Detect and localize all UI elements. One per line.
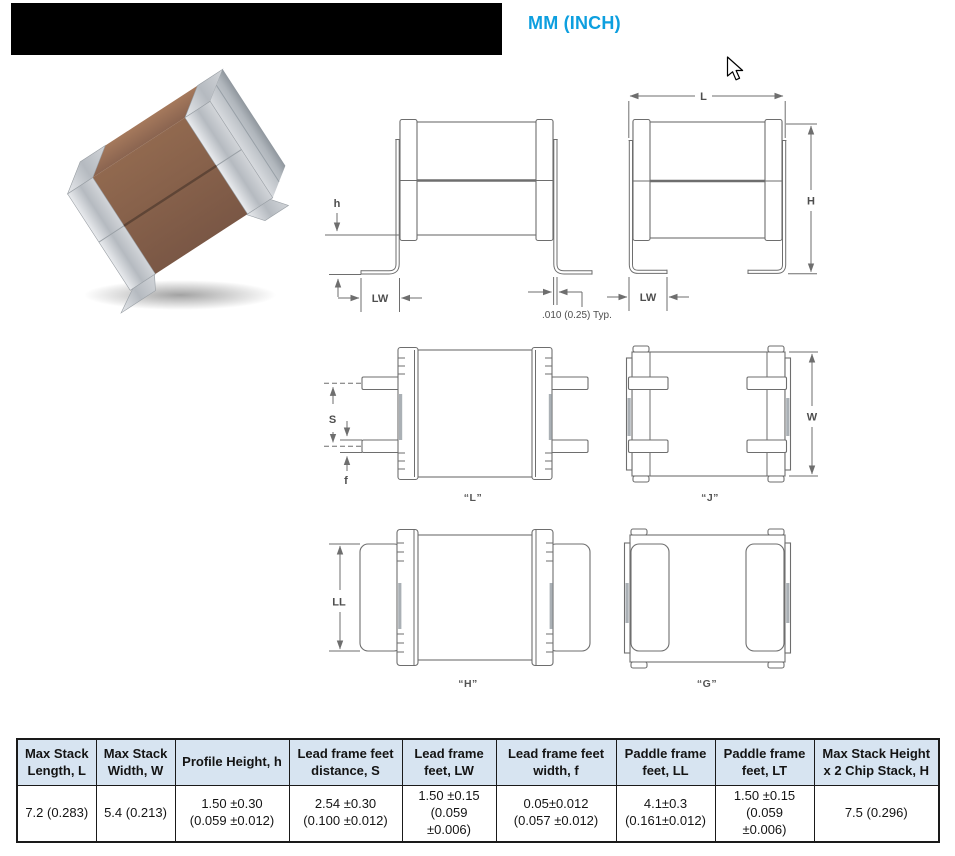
dimension-value-cell: 2.54 ±0.30(0.100 ±0.012) [289,786,402,842]
dim-label-h: h [334,198,341,210]
dimension-value-cell: 4.1±0.3(0.161±0.012) [616,786,715,842]
dim-label-W: W [807,412,818,424]
view-top-j: W “J” [627,346,819,504]
dimension-value-cell: 1.50 ±0.15(0.059±0.006) [402,786,496,842]
typ-note: .010 (0.25) Typ. [542,310,612,321]
dimension-value-cell: 5.4 (0.213) [96,786,175,842]
dim-label-S: S [329,414,336,426]
column-header: Lead frame feet, LW [402,739,496,786]
dim-label-lw-1: LW [372,293,389,305]
caption-H: “H” [458,678,478,690]
dimensions-table: Max Stack Length, LMax Stack Width, WPro… [16,738,940,843]
view-top-h: LL “H” [329,530,590,691]
column-header: Lead frame feet width, f [496,739,616,786]
dimension-value-cell: 1.50 ±0.15(0.059±0.006) [715,786,814,842]
table-data-row: 7.2 (0.283)5.4 (0.213)1.50 ±0.30(0.059 ±… [17,786,939,842]
column-header: Paddle frame feet, LT [715,739,814,786]
view-top-l: S f “L” [324,348,588,505]
column-header: Max Stack Height x 2 Chip Stack, H [814,739,939,786]
dimension-value-cell: 0.05±0.012(0.057 ±0.012) [496,786,616,842]
dim-label-L: L [700,91,707,103]
column-header: Max Stack Length, L [17,739,96,786]
column-header: Paddle frame feet, LL [616,739,715,786]
caption-J: “J” [701,492,719,504]
column-header: Lead frame feet distance, S [289,739,402,786]
dimension-value-cell: 7.2 (0.283) [17,786,96,842]
dimension-value-cell: 7.5 (0.296) [814,786,939,842]
caption-L: “L” [464,492,482,504]
dimension-drawings: h LW .010 (0.25) Typ. L [0,0,955,730]
table-header-row: Max Stack Length, LMax Stack Width, WPro… [17,739,939,786]
datasheet-page: MM (INCH) [0,0,955,856]
dimension-value-cell: 1.50 ±0.30(0.059 ±0.012) [175,786,289,842]
view-front-inward-feet: L H LW [607,91,817,311]
mouse-cursor [726,56,748,84]
dim-label-lw-2: LW [640,292,657,304]
column-header: Profile Height, h [175,739,289,786]
column-header: Max Stack Width, W [96,739,175,786]
dim-label-f: f [344,475,348,487]
dim-label-H: H [807,196,815,208]
dim-label-LL: LL [332,597,346,609]
caption-G: “G” [697,678,717,690]
view-top-g: “G” [625,529,791,690]
view-front-outward-feet: h LW .010 (0.25) Typ. [325,120,612,322]
